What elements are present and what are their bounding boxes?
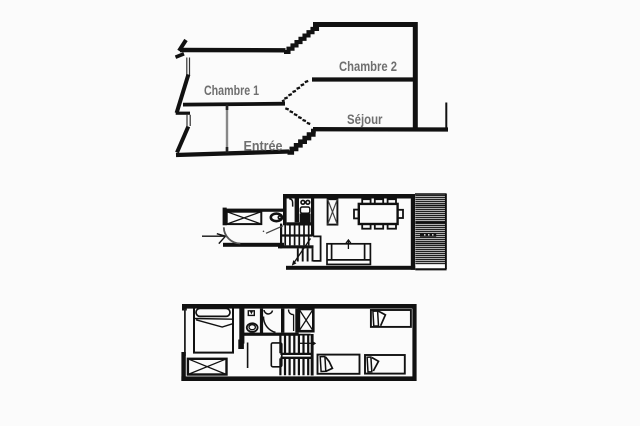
svg-text:Chambre 1: Chambre 1 (204, 82, 259, 98)
svg-text:Entrée: Entrée (244, 137, 283, 153)
svg-text:Chambre 2: Chambre 2 (339, 58, 397, 74)
svg-text:Séjour: Séjour (347, 111, 383, 127)
